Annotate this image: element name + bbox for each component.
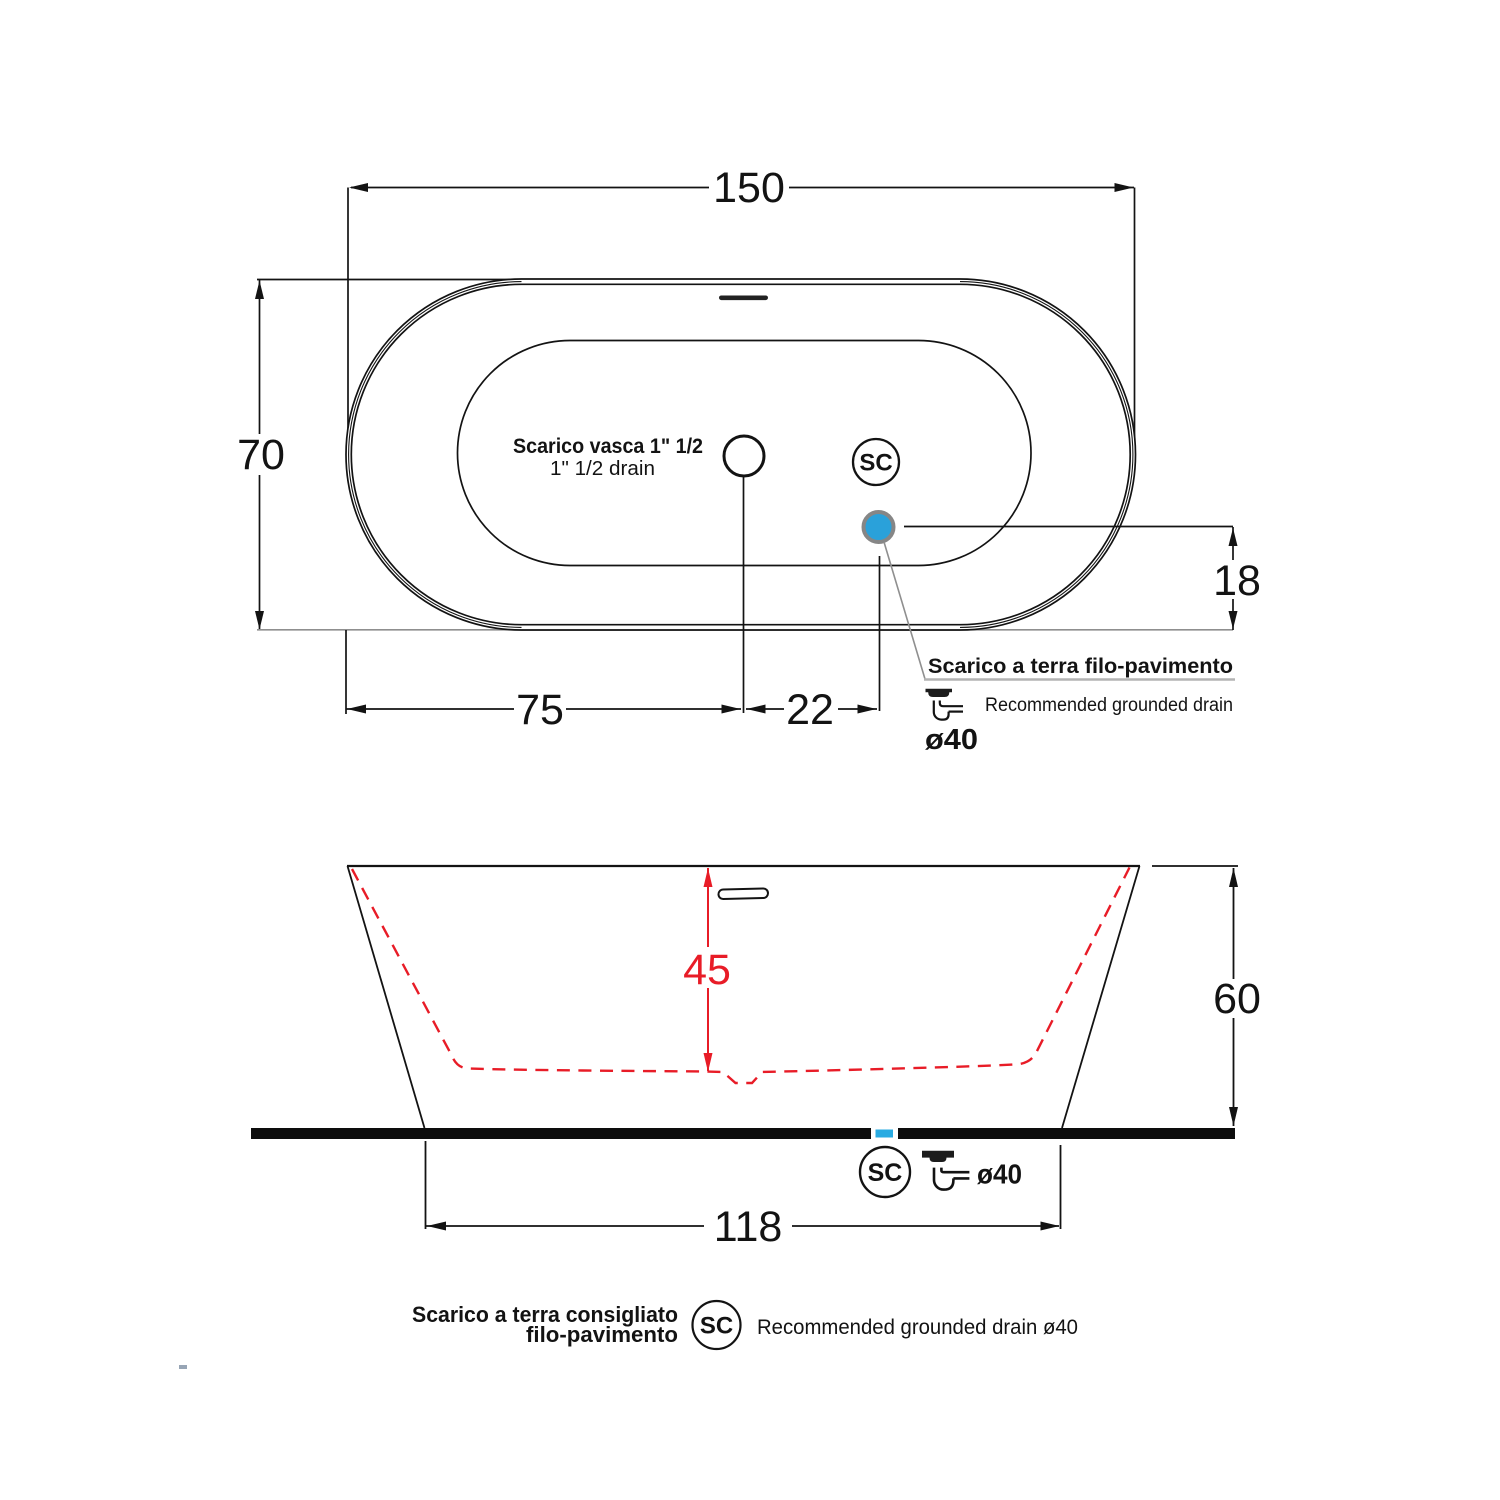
svg-text:Recommended grounded drain: Recommended grounded drain <box>985 695 1233 716</box>
svg-text:SC: SC <box>868 1159 903 1187</box>
svg-text:118: 118 <box>714 1203 783 1251</box>
svg-text:SC: SC <box>859 450 892 477</box>
svg-text:60: 60 <box>1213 975 1261 1023</box>
svg-text:ø40: ø40 <box>925 724 978 756</box>
svg-text:150: 150 <box>713 164 785 212</box>
svg-text:Recommended grounded drain ø40: Recommended grounded drain ø40 <box>757 1316 1078 1339</box>
svg-text:45: 45 <box>683 946 731 994</box>
svg-text:Scarico a terra filo-pavimento: Scarico a terra filo-pavimento <box>928 654 1233 678</box>
svg-text:70: 70 <box>237 431 285 479</box>
svg-text:Scarico vasca 1" 1/2: Scarico vasca 1" 1/2 <box>513 435 703 458</box>
svg-text:1" 1/2 drain: 1" 1/2 drain <box>550 458 655 480</box>
svg-text:22: 22 <box>786 686 834 734</box>
svg-text:filo-pavimento: filo-pavimento <box>526 1322 678 1347</box>
svg-text:SC: SC <box>700 1313 733 1340</box>
svg-text:75: 75 <box>516 686 564 734</box>
svg-text:18: 18 <box>1213 557 1261 605</box>
svg-text:ø40: ø40 <box>977 1159 1022 1190</box>
